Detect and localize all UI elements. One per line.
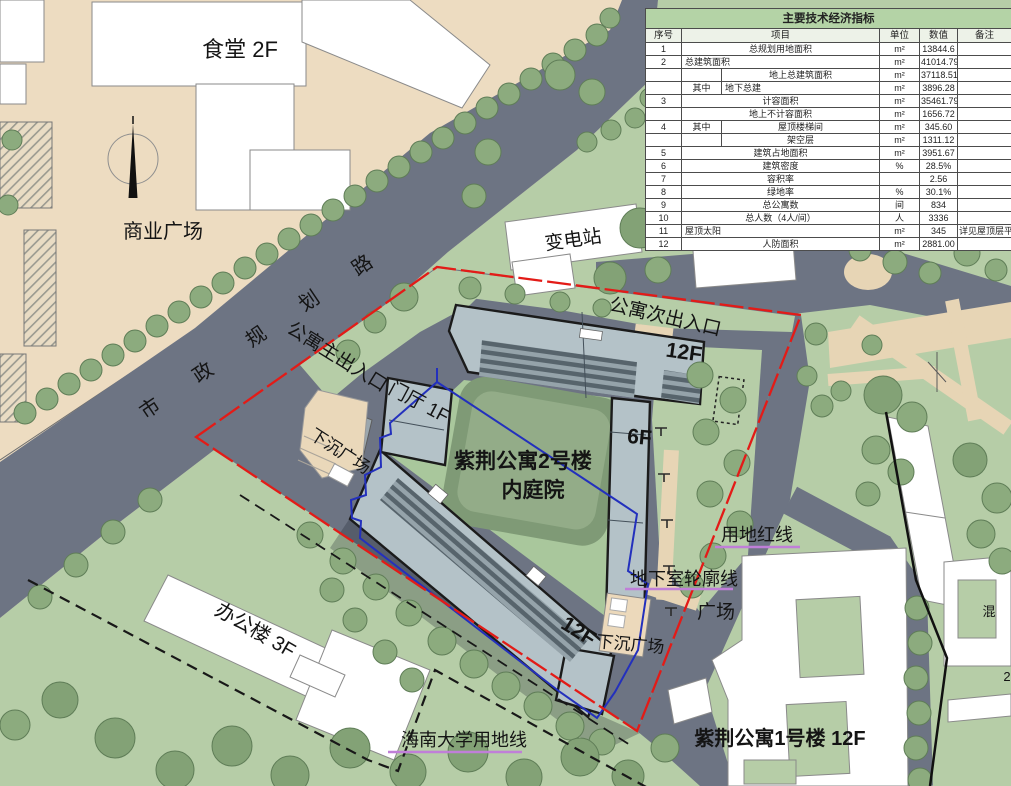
- table-cell: 41014.79: [920, 56, 958, 69]
- table-cell: 9: [646, 199, 682, 212]
- table-cell: [958, 82, 1011, 95]
- table-cell: 2: [646, 56, 682, 69]
- table-cell: [958, 186, 1011, 199]
- table-cell: m²: [880, 69, 920, 82]
- table-cell: [958, 121, 1011, 134]
- tree-icon: [400, 668, 424, 692]
- tree-icon: [907, 701, 931, 725]
- table-cell: m²: [880, 121, 920, 134]
- tree-icon: [905, 596, 929, 620]
- table-cell: 绿地率: [682, 186, 880, 199]
- tree-icon: [212, 272, 234, 294]
- tree-icon: [805, 323, 827, 345]
- tree-icon: [545, 60, 575, 90]
- tree-icon: [524, 692, 552, 720]
- table-cell: 总公寓数: [682, 199, 880, 212]
- table-row: 11屋顶太阳m²345详见屋顶层平面图: [646, 225, 1011, 238]
- tree-icon: [550, 292, 570, 312]
- table-cell: [958, 147, 1011, 160]
- table-row: 主要技术经济指标: [646, 9, 1011, 29]
- label-commercial-plaza: 商业广场: [123, 220, 203, 243]
- table-cell: [958, 238, 1011, 251]
- table-cell: [682, 69, 722, 82]
- table-cell: 总规划用地面积: [682, 43, 880, 56]
- table-cell: 总人数（4人/间）: [682, 212, 880, 225]
- tree-icon: [601, 120, 621, 140]
- tree-icon: [256, 243, 278, 265]
- table-cell: 10: [646, 212, 682, 225]
- tree-icon: [14, 402, 36, 424]
- table-cell: [880, 173, 920, 186]
- table-row: 架空层m²1311.12: [646, 134, 1011, 147]
- tree-icon: [366, 170, 388, 192]
- tree-icon: [908, 631, 932, 655]
- tree-icon: [168, 301, 190, 323]
- tree-icon: [146, 315, 168, 337]
- table-cell: m²: [880, 238, 920, 251]
- tree-icon: [498, 83, 520, 105]
- tree-icon: [492, 672, 520, 700]
- table-cell: 计容面积: [682, 95, 880, 108]
- tree-icon: [953, 443, 987, 477]
- table-cell: 主要技术经济指标: [646, 9, 1011, 29]
- table-cell: 数值: [920, 29, 958, 43]
- table-cell: [958, 212, 1011, 225]
- indicator-table: 主要技术经济指标序号项目单位数值备注1总规划用地面积m²13844.62总建筑面…: [645, 8, 1011, 251]
- table-cell: m²: [880, 225, 920, 238]
- table-cell: [958, 134, 1011, 147]
- tree-icon: [967, 520, 995, 548]
- tree-icon: [36, 388, 58, 410]
- table-cell: %: [880, 186, 920, 199]
- table-cell: m²: [880, 134, 920, 147]
- table-cell: 详见屋顶层平面图: [958, 225, 1011, 238]
- table-cell: 人: [880, 212, 920, 225]
- tree-icon: [80, 359, 102, 381]
- tree-icon: [101, 520, 125, 544]
- label-floors-6f: 6F: [626, 425, 653, 450]
- tree-icon: [138, 488, 162, 512]
- tree-icon: [320, 578, 344, 602]
- tree-icon: [919, 262, 941, 284]
- table-cell: 1: [646, 43, 682, 56]
- table-cell: 间: [880, 199, 920, 212]
- table-cell: 2.56: [920, 173, 958, 186]
- tree-icon: [645, 257, 671, 283]
- label-university-line-label: 海南大学用地线: [401, 730, 527, 750]
- tree-icon: [42, 682, 78, 718]
- tree-icon: [579, 79, 605, 105]
- table-cell: 6: [646, 160, 682, 173]
- table-cell: 11: [646, 225, 682, 238]
- table-cell: 建筑占地面积: [682, 147, 880, 160]
- table-cell: 地下总建: [722, 82, 880, 95]
- tree-icon: [410, 141, 432, 163]
- table-row: 地上总建筑面积m²37118.51: [646, 69, 1011, 82]
- tree-icon: [390, 754, 426, 786]
- tree-icon: [475, 139, 501, 165]
- label-building2-name: 紫荆公寓2号楼: [454, 449, 592, 473]
- table-row: 8绿地率%30.1%: [646, 186, 1011, 199]
- table-cell: 屋顶楼梯间: [722, 121, 880, 134]
- table-cell: 地上总建筑面积: [722, 69, 880, 82]
- tree-icon: [95, 718, 135, 758]
- table-cell: m²: [880, 108, 920, 121]
- tree-icon: [156, 751, 194, 786]
- tree-icon: [364, 311, 386, 333]
- tree-icon: [428, 627, 456, 655]
- tree-icon: [330, 728, 370, 768]
- table-cell: [682, 134, 722, 147]
- tree-icon: [600, 8, 620, 28]
- tree-icon: [454, 112, 476, 134]
- table-row: 序号项目单位数值备注: [646, 29, 1011, 43]
- table-cell: [958, 43, 1011, 56]
- table-cell: [646, 134, 682, 147]
- tree-icon: [124, 330, 146, 352]
- table-row: 7容积率2.56: [646, 173, 1011, 186]
- table-cell: 总建筑面积: [682, 56, 880, 69]
- table-cell: 12: [646, 238, 682, 251]
- site-plan-page: { "table": { "title": "主要技术经济指标", "colum…: [0, 0, 1011, 786]
- tree-icon: [904, 666, 928, 690]
- tree-icon: [460, 650, 488, 678]
- label-plaza-label: 广场: [697, 601, 735, 623]
- tree-icon: [577, 132, 597, 152]
- tree-icon: [864, 376, 902, 414]
- tree-icon: [888, 459, 914, 485]
- tree-icon: [373, 640, 397, 664]
- tree-icon: [693, 419, 719, 445]
- table-cell: 5: [646, 147, 682, 160]
- tree-icon: [343, 608, 367, 632]
- label-canteen: 食堂 2F: [202, 37, 278, 62]
- table-cell: 1656.72: [920, 108, 958, 121]
- tree-icon: [989, 548, 1011, 574]
- table-cell: [958, 160, 1011, 173]
- table-cell: 备注: [958, 29, 1011, 43]
- table-cell: m²: [880, 82, 920, 95]
- table-row: 10总人数（4人/间）人3336: [646, 212, 1011, 225]
- table-cell: 3951.67: [920, 147, 958, 160]
- tree-icon: [190, 286, 212, 308]
- table-cell: 屋顶太阳: [682, 225, 880, 238]
- tree-icon: [811, 395, 833, 417]
- table-cell: 13844.6: [920, 43, 958, 56]
- table-cell: %: [880, 160, 920, 173]
- label-red-line-label: 用地红线: [721, 525, 793, 545]
- tree-icon: [64, 553, 88, 577]
- table-cell: 人防面积: [682, 238, 880, 251]
- table-cell: 3336: [920, 212, 958, 225]
- tree-icon: [300, 214, 322, 236]
- tree-icon: [862, 436, 890, 464]
- table-cell: [958, 95, 1011, 108]
- tree-icon: [462, 184, 486, 208]
- tree-icon: [459, 277, 481, 299]
- tree-icon: [58, 373, 80, 395]
- table-cell: [646, 69, 682, 82]
- table-cell: 地上不计容面积: [682, 108, 880, 121]
- tree-icon: [0, 195, 18, 215]
- table-row: 5建筑占地面积m²3951.67: [646, 147, 1011, 160]
- table-cell: [646, 82, 682, 95]
- tree-icon: [388, 156, 410, 178]
- label-building1-name: 紫荆公寓1号楼 12F: [694, 726, 865, 750]
- table-cell: 单位: [880, 29, 920, 43]
- tree-icon: [476, 97, 498, 119]
- tree-icon: [724, 450, 750, 476]
- tree-icon: [897, 402, 927, 432]
- tree-icon: [278, 228, 300, 250]
- table-cell: 28.5%: [920, 160, 958, 173]
- table-cell: 345: [920, 225, 958, 238]
- tree-icon: [904, 736, 928, 760]
- tree-icon: [344, 185, 366, 207]
- table-cell: 项目: [682, 29, 880, 43]
- table-cell: 7: [646, 173, 682, 186]
- tree-icon: [28, 585, 52, 609]
- table-cell: 35461.79: [920, 95, 958, 108]
- tree-icon: [330, 548, 356, 574]
- table-cell: 37118.51: [920, 69, 958, 82]
- label-building2-courtyard: 内庭院: [502, 478, 565, 502]
- table-cell: 其中: [682, 121, 722, 134]
- table-cell: [958, 69, 1011, 82]
- table-row: 12人防面积m²2881.00: [646, 238, 1011, 251]
- table-cell: 1311.12: [920, 134, 958, 147]
- tree-icon: [505, 284, 525, 304]
- table-cell: 2881.00: [920, 238, 958, 251]
- tree-icon: [586, 24, 608, 46]
- tree-icon: [432, 127, 454, 149]
- tree-icon: [212, 726, 252, 766]
- tree-icon: [234, 257, 256, 279]
- table-cell: 4: [646, 121, 682, 134]
- tree-icon: [556, 712, 584, 740]
- table-cell: 30.1%: [920, 186, 958, 199]
- tree-icon: [797, 366, 817, 386]
- table-cell: [646, 108, 682, 121]
- table-cell: 8: [646, 186, 682, 199]
- table-cell: m²: [880, 43, 920, 56]
- table-cell: m²: [880, 95, 920, 108]
- table-cell: [958, 56, 1011, 69]
- table-cell: 建筑密度: [682, 160, 880, 173]
- tree-icon: [856, 482, 880, 506]
- table-row: 3计容面积m²35461.79: [646, 95, 1011, 108]
- table-row: 2总建筑面积m²41014.79: [646, 56, 1011, 69]
- table-cell: 容积率: [682, 173, 880, 186]
- table-cell: [958, 199, 1011, 212]
- label-partial-label-2: 2: [1003, 669, 1010, 684]
- table-cell: [958, 108, 1011, 121]
- tree-icon: [2, 130, 22, 150]
- tree-icon: [985, 259, 1007, 281]
- table-row: 9总公寓数间834: [646, 199, 1011, 212]
- table-cell: [958, 173, 1011, 186]
- table-row: 地上不计容面积m²1656.72: [646, 108, 1011, 121]
- table-cell: m²: [880, 56, 920, 69]
- label-partial-label-hun: 混: [982, 604, 995, 619]
- tree-icon: [651, 734, 679, 762]
- table-row: 其中地下总建m²3896.28: [646, 82, 1011, 95]
- table-row: 6建筑密度%28.5%: [646, 160, 1011, 173]
- table-cell: 3: [646, 95, 682, 108]
- tree-icon: [564, 39, 586, 61]
- tree-icon: [322, 199, 344, 221]
- table-cell: 3896.28: [920, 82, 958, 95]
- label-basement-outline-label: 地下室轮廓线: [630, 569, 738, 589]
- tree-icon: [720, 387, 746, 413]
- tree-icon: [625, 108, 645, 128]
- table-cell: 架空层: [722, 134, 880, 147]
- tree-icon: [831, 381, 851, 401]
- tree-icon: [883, 250, 907, 274]
- table-cell: 834: [920, 199, 958, 212]
- table-row: 4其中屋顶楼梯间m²345.60: [646, 121, 1011, 134]
- tree-icon: [982, 483, 1011, 513]
- table-row: 1总规划用地面积m²13844.6: [646, 43, 1011, 56]
- tree-icon: [520, 68, 542, 90]
- table-cell: 其中: [682, 82, 722, 95]
- tree-icon: [697, 481, 723, 507]
- table-cell: m²: [880, 147, 920, 160]
- tree-icon: [102, 344, 124, 366]
- tree-icon: [0, 710, 30, 740]
- table-cell: 345.60: [920, 121, 958, 134]
- tree-icon: [862, 335, 882, 355]
- table-cell: 序号: [646, 29, 682, 43]
